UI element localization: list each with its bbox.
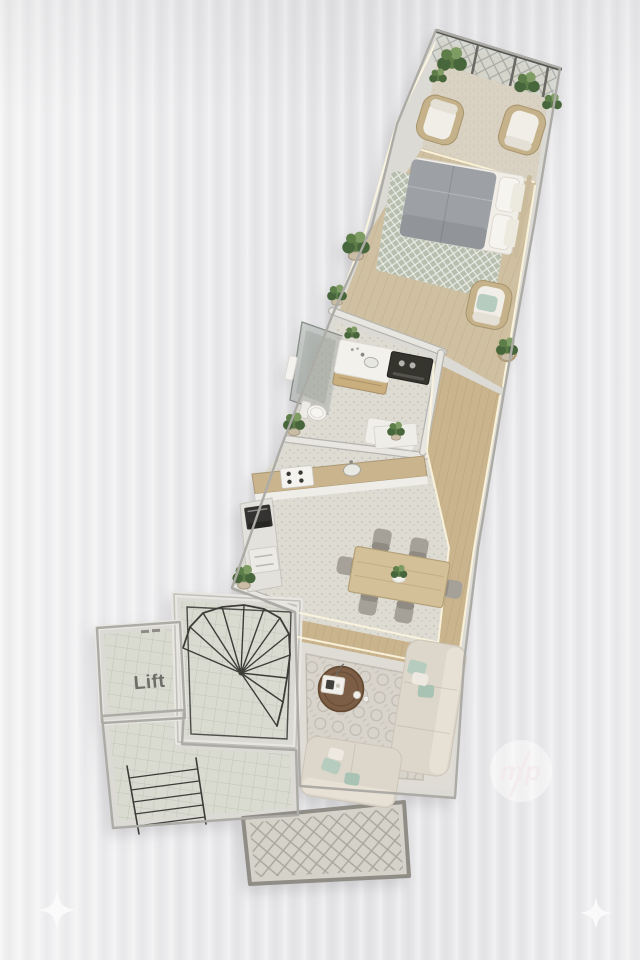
sparkle-icon [38,891,76,929]
watermark: mp [490,740,552,802]
cup [353,691,360,698]
mint-pillow [344,772,361,786]
cooktop [280,465,314,488]
floor-plan-image: Lift [0,0,640,960]
floor-plan: Lift [97,30,562,884]
cup [363,696,369,702]
drawer-unit [248,546,279,574]
vanity [331,339,395,395]
lift-label: Lift [133,671,166,695]
mint-pillow [417,684,434,698]
sparkle-icon [580,897,612,929]
floor-plan-canvas: Lift [0,0,640,960]
balcony [243,802,409,884]
oven [244,504,273,529]
